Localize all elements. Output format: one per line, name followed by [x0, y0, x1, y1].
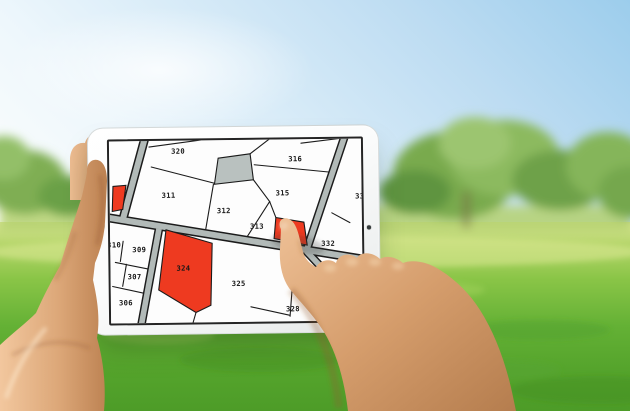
parcel-label-309: 309: [132, 245, 146, 254]
parcel-label-328: 328: [286, 304, 300, 313]
parcel-label-310-clipped: 310: [109, 240, 121, 249]
photo-scene: 320 316 311 312 315 313 314 332 331 310 …: [0, 0, 630, 411]
parcel-label-320: 320: [171, 147, 185, 156]
tablet-screen[interactable]: 320 316 311 312 315 313 314 332 331 310 …: [107, 136, 365, 325]
parcel-label-315: 315: [276, 188, 290, 197]
tablet-device: 320 316 311 312 315 313 314 332 331 310 …: [87, 124, 382, 336]
camera-icon: [367, 225, 371, 229]
parcel-label-331-clipped: 331: [355, 191, 363, 200]
parcel-label-306: 306: [119, 298, 133, 307]
parcel-label-312: 312: [217, 206, 231, 215]
parcel-label-311: 311: [162, 191, 176, 200]
cadastral-map[interactable]: 320 316 311 312 315 313 314 332 331 310 …: [109, 138, 363, 323]
parcel-label-325: 325: [232, 279, 246, 288]
parcel-label-316: 316: [288, 154, 302, 163]
parcel-label-324: 324: [176, 264, 190, 273]
home-button[interactable]: [92, 220, 105, 233]
parcel-label-313: 313: [250, 222, 264, 231]
parcel-gray-reserved[interactable]: [214, 154, 253, 184]
parcel-label-307: 307: [128, 272, 142, 281]
